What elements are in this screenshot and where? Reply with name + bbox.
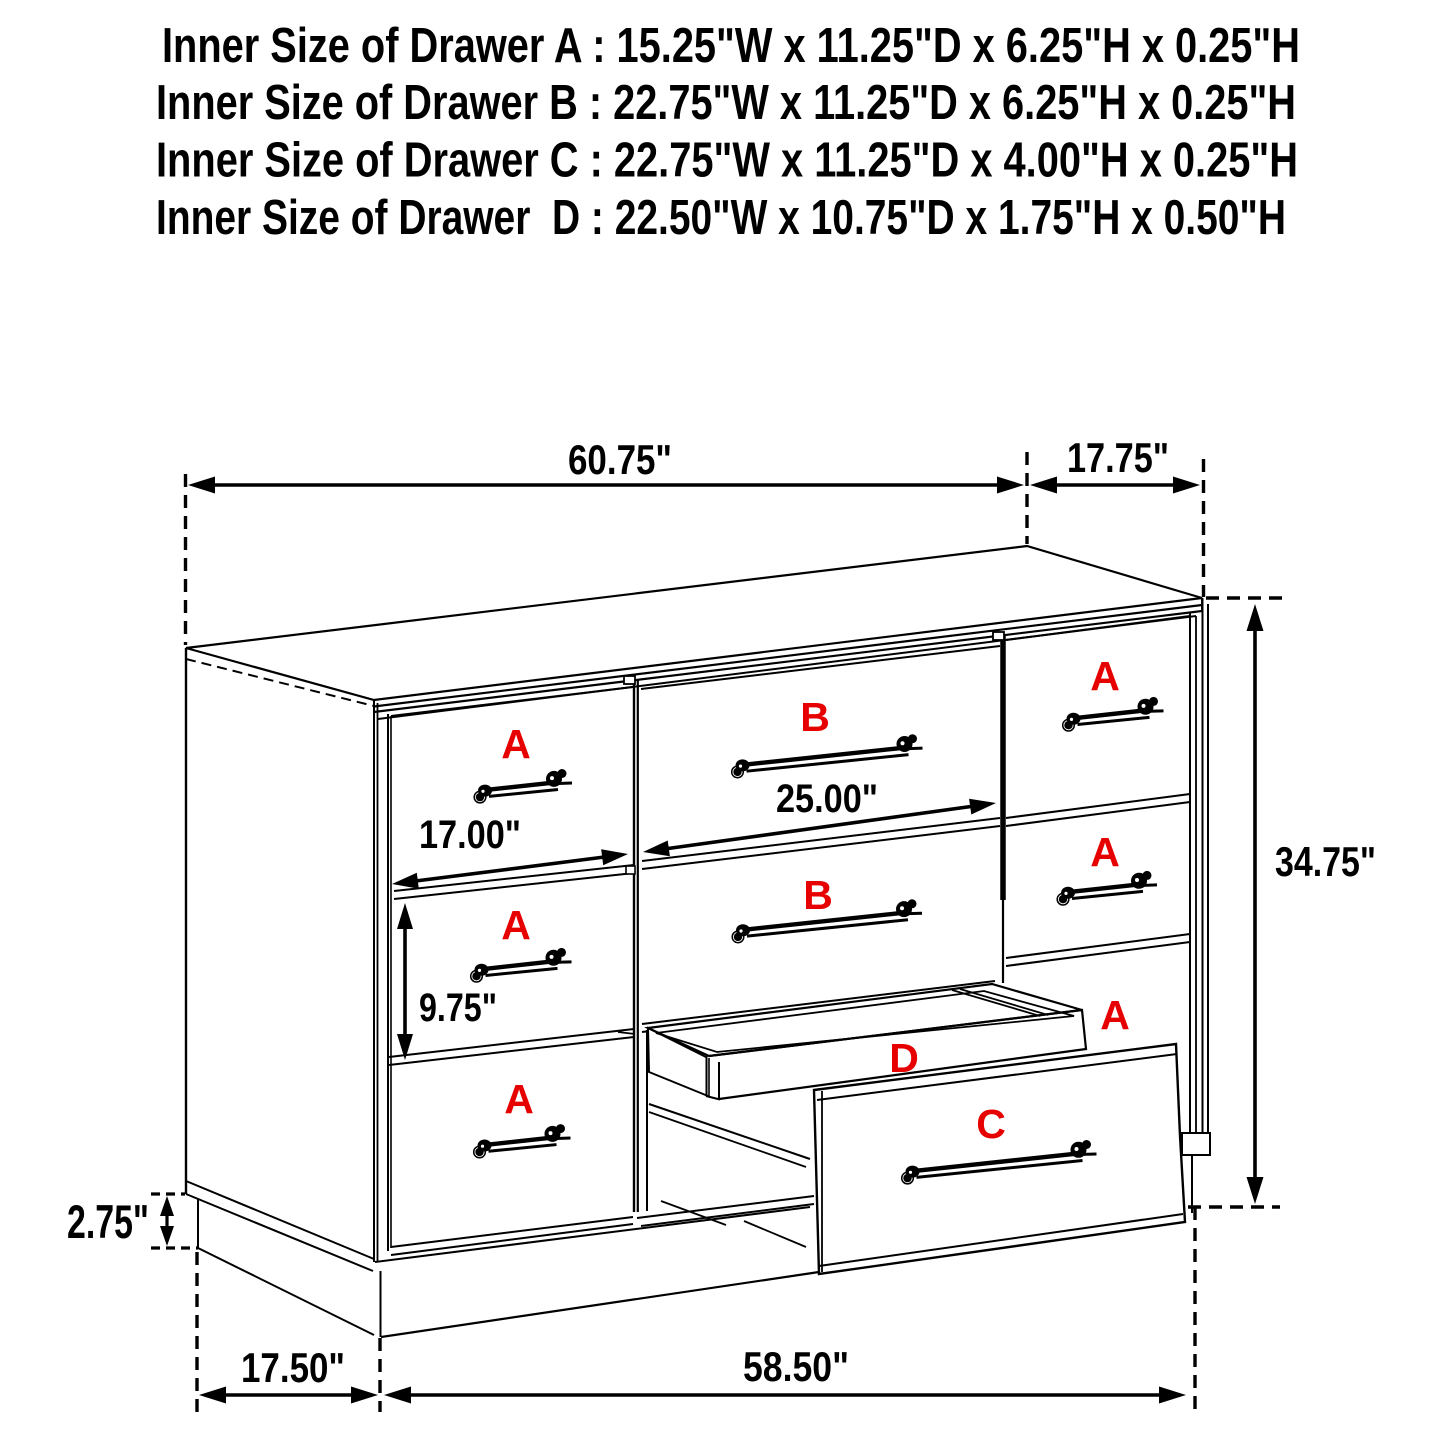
svg-text:Inner Size of Drawer A : 15.25: Inner Size of Drawer A : 15.25"W x 11.25… <box>162 18 1300 73</box>
svg-text:A: A <box>1090 829 1120 875</box>
svg-text:A: A <box>504 1076 534 1122</box>
svg-text:17.00": 17.00" <box>419 813 521 857</box>
svg-text:9.75": 9.75" <box>419 986 497 1030</box>
svg-text:A: A <box>1090 653 1120 699</box>
svg-text:B: B <box>800 694 830 740</box>
svg-text:A: A <box>501 902 531 948</box>
svg-text:2.75": 2.75" <box>67 1195 149 1248</box>
svg-text:A: A <box>501 721 531 767</box>
svg-text:17.75": 17.75" <box>1067 434 1169 481</box>
svg-text:34.75": 34.75" <box>1275 838 1376 885</box>
svg-text:C: C <box>976 1101 1006 1147</box>
svg-text:D: D <box>889 1035 919 1081</box>
svg-text:17.50": 17.50" <box>241 1344 345 1391</box>
svg-text:58.50": 58.50" <box>743 1343 849 1390</box>
svg-text:60.75": 60.75" <box>568 436 672 483</box>
svg-text:A: A <box>1100 992 1130 1038</box>
svg-text:Inner Size of Drawer C : 22.75: Inner Size of Drawer C : 22.75"W x 11.25… <box>156 133 1298 188</box>
svg-text:B: B <box>803 872 833 918</box>
svg-text:Inner Size of Drawer D : 22.5: Inner Size of Drawer D : 22.50"W x 10.75… <box>156 190 1286 245</box>
svg-text:25.00": 25.00" <box>776 777 878 821</box>
svg-text:Inner Size of Drawer B : 22.75: Inner Size of Drawer B : 22.75"W x 11.25… <box>156 75 1296 130</box>
